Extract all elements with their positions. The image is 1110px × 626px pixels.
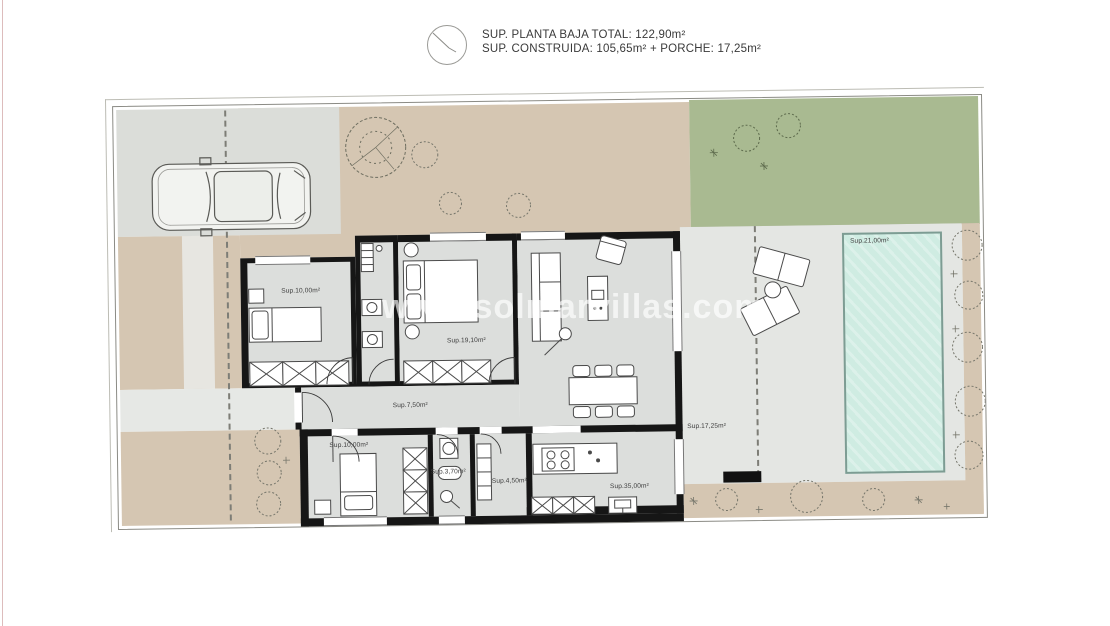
gravel-light-strip: [182, 236, 215, 389]
label-bedroom-bottom: Sup.10,00m²: [318, 441, 380, 449]
swimming-pool: [842, 232, 945, 474]
room-bedroom-main: [398, 233, 519, 386]
room-living-kitchen: [517, 231, 684, 515]
window-living-top: [521, 231, 565, 241]
gravel-right-strip: [962, 223, 984, 513]
door-gap-bathroom: [436, 427, 458, 434]
gravel-bottom-strip: [683, 480, 983, 518]
door-gap-utility: [480, 427, 502, 434]
partition-utility-kitchen: [526, 433, 533, 515]
window-bedroom-main: [430, 232, 486, 242]
bottom-block-left-wall: [300, 429, 309, 526]
floor-plan-page: SUP. PLANTA BAJA TOTAL: 122,90m² SUP. CO…: [0, 0, 1110, 626]
label-bathroom-bottom: Sup.3,70m²: [420, 468, 476, 476]
window-bedroom3-bottom: [324, 516, 387, 526]
label-living-kitchen: Sup.35,00m²: [596, 482, 662, 490]
plan-header: SUP. PLANTA BAJA TOTAL: 122,90m² SUP. CO…: [426, 24, 761, 66]
site-plan: Sup.10,00m² Sup.19,10m² Sup.7,50m² Sup.1…: [112, 94, 988, 530]
room-bedroom-top-left: [240, 257, 357, 389]
north-compass-icon: [426, 24, 468, 66]
door-gap-bedroom3: [332, 429, 358, 436]
label-utility: Sup.4,50m²: [482, 477, 536, 485]
built-area-line: SUP. CONSTRUIDA: 105,65m² + PORCHE: 17,2…: [482, 42, 761, 56]
label-bedroom-top-left: Sup.10,00m²: [266, 287, 336, 295]
label-hallway: Sup.7,50m²: [375, 401, 445, 409]
front-door-gap: [294, 392, 302, 422]
entry-path: [120, 388, 296, 432]
opening-kitchen: [533, 426, 581, 434]
label-bedroom-main: Sup.19,10m²: [431, 337, 501, 345]
driveway: [116, 107, 341, 237]
lawn: [689, 96, 980, 228]
gravel-left-bottom: [121, 430, 301, 526]
label-porch: Sup.17,25m²: [676, 422, 738, 430]
room-bathroom-top: [355, 235, 400, 387]
sliding-door-living: [671, 251, 682, 351]
porch-step: [723, 471, 761, 483]
window-bath-bottom: [439, 515, 465, 524]
total-area-line: SUP. PLANTA BAJA TOTAL: 122,90m²: [482, 28, 761, 42]
gravel-left-column: [118, 235, 242, 390]
page-edge-line: [2, 0, 3, 626]
label-pool: Sup.21,00m²: [850, 237, 910, 245]
window-kitchen-right: [674, 439, 685, 494]
window-bedroom-top-left: [255, 255, 310, 265]
